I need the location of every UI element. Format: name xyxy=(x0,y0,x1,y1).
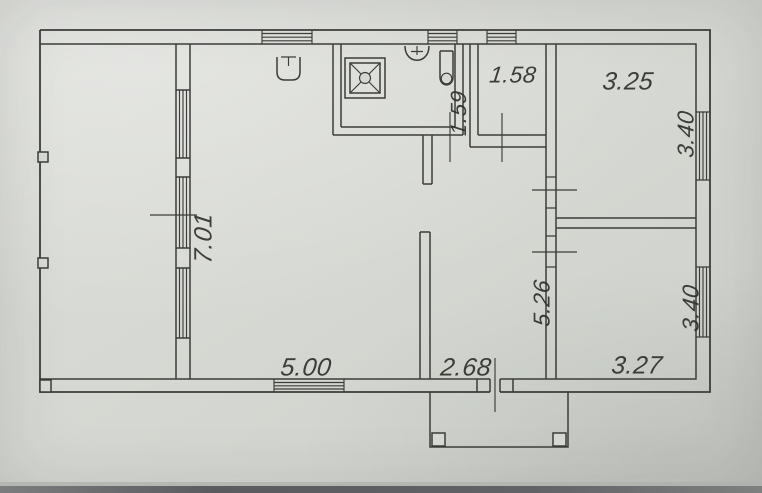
divider-lines xyxy=(556,218,696,228)
dim-hall-length: 5.26 xyxy=(529,278,556,328)
dim-veranda-length: 7.01 xyxy=(190,211,219,265)
window-hatch xyxy=(487,30,516,44)
heater-outlet xyxy=(441,73,452,84)
window-top-bath xyxy=(428,30,457,44)
photo-bottom-edge xyxy=(0,486,762,493)
storage-wall-lines xyxy=(470,44,546,147)
wash-basin-icon xyxy=(405,46,429,60)
window-hatch xyxy=(262,30,312,44)
inner-wall-line xyxy=(40,44,696,379)
post xyxy=(38,152,48,162)
porch-outline xyxy=(430,392,568,447)
hall-wall-lines xyxy=(420,232,430,379)
post xyxy=(38,258,48,268)
dim-bath-depth: 1.59 xyxy=(446,89,472,137)
post xyxy=(40,380,51,392)
porch xyxy=(430,392,568,447)
dim-room-bottom-width: 3.27 xyxy=(610,352,664,381)
sink-tap xyxy=(281,57,296,66)
porch-post xyxy=(553,433,566,446)
storage-walls xyxy=(470,44,546,147)
window-top-storage xyxy=(487,30,516,44)
dim-storage-width: 1.58 xyxy=(488,62,538,89)
central-wall-lines xyxy=(546,44,556,379)
basin-tap xyxy=(411,46,423,55)
hall-partition-wall xyxy=(420,232,430,379)
water-heater-icon xyxy=(440,51,453,85)
scanned-floor-plan-photo: 7.01 5.00 2.68 1.59 1.58 3.25 3.40 5.26 … xyxy=(0,0,762,493)
kitchen-sink-icon xyxy=(277,57,300,80)
shower-tray-icon xyxy=(345,58,385,98)
dim-room-top-width: 3.25 xyxy=(601,68,655,97)
veranda-partition-wall xyxy=(176,44,190,379)
drain xyxy=(360,73,371,84)
right-rooms-divider-wall xyxy=(556,218,696,228)
window-hatch xyxy=(428,30,457,44)
dim-room-top-depth: 3.40 xyxy=(673,109,700,159)
central-wall xyxy=(546,44,556,379)
partition-glazing-hatch xyxy=(180,90,187,338)
dim-hall-width: 2.68 xyxy=(439,354,493,383)
porch-post xyxy=(432,433,445,446)
dim-living-width: 5.00 xyxy=(279,354,333,383)
window-top-living xyxy=(262,30,312,44)
dim-room-bottom-depth: 3.40 xyxy=(678,283,705,333)
